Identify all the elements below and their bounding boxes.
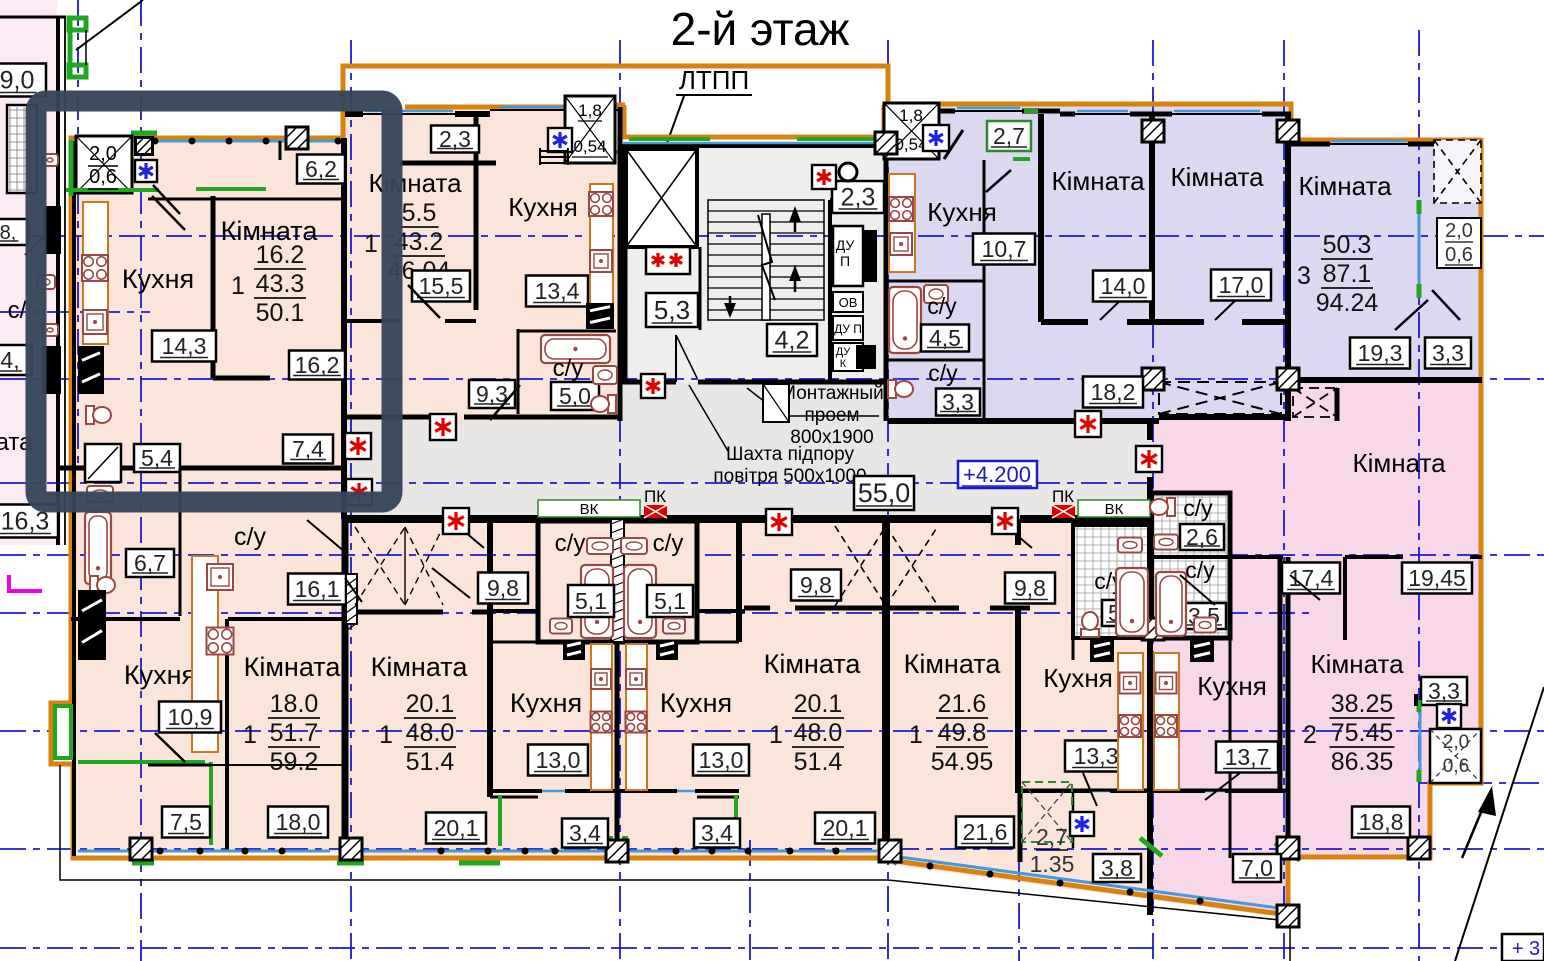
svg-text:50.3: 50.3 bbox=[1323, 231, 1372, 259]
svg-text:Кімната: Кімната bbox=[1352, 448, 1446, 478]
svg-text:К: К bbox=[840, 358, 847, 370]
svg-text:15,5: 15,5 bbox=[419, 273, 464, 299]
svg-text:13,4: 13,4 bbox=[535, 278, 580, 304]
svg-text:Кухня: Кухня bbox=[1043, 663, 1113, 693]
svg-text:Кімната: Кімната bbox=[244, 652, 342, 682]
svg-text:51.4: 51.4 bbox=[794, 748, 843, 776]
svg-text:с/у: с/у bbox=[234, 523, 266, 551]
svg-text:1: 1 bbox=[769, 721, 783, 749]
svg-text:3: 3 bbox=[1297, 262, 1311, 290]
svg-text:10,7: 10,7 bbox=[982, 236, 1027, 262]
svg-text:13,3: 13,3 bbox=[1074, 743, 1119, 769]
svg-text:3,4: 3,4 bbox=[701, 820, 733, 846]
svg-text:13,0: 13,0 bbox=[536, 747, 581, 773]
svg-text:16,1: 16,1 bbox=[295, 576, 340, 602]
svg-text:1.35: 1.35 bbox=[1030, 851, 1075, 877]
svg-text:П: П bbox=[840, 253, 850, 269]
svg-text:38.25: 38.25 bbox=[1331, 690, 1394, 718]
svg-text:18,8: 18,8 bbox=[1359, 809, 1404, 835]
svg-text:9,8: 9,8 bbox=[1014, 575, 1046, 601]
svg-text:+ 3: + 3 bbox=[1512, 938, 1540, 960]
svg-text:19,3: 19,3 bbox=[1358, 340, 1403, 366]
svg-text:0,6: 0,6 bbox=[89, 166, 117, 188]
svg-text:86.35: 86.35 bbox=[1331, 748, 1394, 776]
svg-text:87.1: 87.1 bbox=[1323, 260, 1372, 288]
svg-text:7,5: 7,5 bbox=[170, 809, 202, 835]
svg-text:ВК: ВК bbox=[1105, 501, 1124, 518]
svg-text:18,0: 18,0 bbox=[276, 809, 321, 835]
svg-text:5,3: 5,3 bbox=[654, 295, 690, 325]
svg-text:14,0: 14,0 bbox=[1101, 273, 1146, 299]
svg-text:5,0: 5,0 bbox=[559, 383, 591, 409]
svg-text:Кімната: Кімната bbox=[1051, 166, 1145, 196]
svg-text:1,8: 1,8 bbox=[899, 106, 923, 125]
svg-text:с/у: с/у bbox=[1185, 557, 1215, 583]
svg-text:Кухня: Кухня bbox=[927, 197, 997, 227]
svg-text:5,1: 5,1 bbox=[575, 588, 607, 614]
svg-text:14,3: 14,3 bbox=[162, 333, 207, 359]
svg-text:59.2: 59.2 bbox=[270, 748, 319, 776]
svg-text:ОВ: ОВ bbox=[839, 295, 858, 310]
svg-text:2,7: 2,7 bbox=[993, 123, 1025, 149]
svg-text:5,1: 5,1 bbox=[654, 588, 686, 614]
svg-text:20,1: 20,1 bbox=[823, 815, 868, 841]
svg-text:с/у: с/у bbox=[927, 293, 957, 319]
svg-text:10,9: 10,9 bbox=[168, 704, 213, 730]
svg-text:48.0: 48.0 bbox=[406, 719, 455, 747]
svg-text:2: 2 bbox=[1303, 721, 1317, 749]
svg-text:16,2: 16,2 bbox=[295, 352, 340, 378]
svg-text:9,8: 9,8 bbox=[487, 575, 519, 601]
svg-text:3,3: 3,3 bbox=[1432, 340, 1464, 366]
svg-text:13,0: 13,0 bbox=[699, 747, 744, 773]
svg-text:18,2: 18,2 bbox=[1091, 379, 1136, 405]
svg-text:1: 1 bbox=[379, 721, 393, 749]
svg-text:Кухня: Кухня bbox=[122, 264, 194, 294]
svg-text:7,4: 7,4 bbox=[292, 436, 324, 462]
svg-text:6,7: 6,7 bbox=[134, 550, 166, 576]
svg-text:2,0: 2,0 bbox=[1445, 220, 1473, 242]
svg-text:Шахта підпору: Шахта підпору bbox=[726, 444, 854, 465]
svg-text:Кімната: Кімната bbox=[1170, 162, 1264, 192]
svg-text:48.0: 48.0 bbox=[794, 719, 843, 747]
svg-text:20.1: 20.1 bbox=[406, 690, 455, 718]
svg-text:54.95: 54.95 bbox=[931, 748, 994, 776]
svg-text:4,: 4, bbox=[0, 347, 19, 373]
svg-text:2,7: 2,7 bbox=[1036, 824, 1068, 850]
svg-text:17,0: 17,0 bbox=[1219, 272, 1264, 298]
svg-text:2-й этаж: 2-й этаж bbox=[671, 3, 850, 55]
svg-text:51.7: 51.7 bbox=[270, 719, 319, 747]
svg-text:16.2: 16.2 bbox=[256, 241, 305, 269]
svg-text:Кухня: Кухня bbox=[510, 688, 582, 718]
svg-text:Кімната: Кімната bbox=[904, 649, 1002, 679]
svg-text:Кімната: Кімната bbox=[1298, 171, 1392, 201]
svg-text:1: 1 bbox=[364, 230, 378, 258]
svg-text:ПК: ПК bbox=[644, 487, 666, 506]
svg-text:4,2: 4,2 bbox=[775, 327, 810, 355]
svg-text:2,3: 2,3 bbox=[841, 184, 876, 212]
svg-text:2,0: 2,0 bbox=[89, 143, 117, 165]
svg-text:Кухня: Кухня bbox=[124, 660, 196, 690]
svg-text:1: 1 bbox=[909, 721, 923, 749]
svg-text:ДУ: ДУ bbox=[836, 346, 852, 358]
svg-text:с/: с/ bbox=[8, 297, 27, 324]
svg-text:1: 1 bbox=[231, 272, 245, 300]
svg-text:13,7: 13,7 bbox=[1225, 744, 1270, 770]
svg-text:ДУ: ДУ bbox=[836, 237, 855, 253]
svg-text:ВК: ВК bbox=[580, 501, 599, 518]
svg-text:Кімната: Кімната bbox=[371, 652, 469, 682]
svg-text:9,8: 9,8 bbox=[800, 572, 832, 598]
svg-text:51.4: 51.4 bbox=[406, 748, 455, 776]
svg-text:2,0: 2,0 bbox=[1443, 732, 1469, 753]
svg-text:с/у: с/у bbox=[653, 530, 684, 557]
svg-text:Кухня: Кухня bbox=[1197, 671, 1267, 701]
svg-text:55,0: 55,0 bbox=[858, 478, 911, 508]
svg-text:3,8: 3,8 bbox=[1101, 855, 1133, 881]
svg-text:ЛТПП: ЛТПП bbox=[679, 65, 749, 95]
svg-text:Кухня: Кухня bbox=[508, 192, 578, 222]
svg-text:0,6: 0,6 bbox=[1445, 244, 1473, 266]
svg-text:21,6: 21,6 bbox=[963, 819, 1008, 845]
svg-text:50.1: 50.1 bbox=[256, 299, 305, 327]
svg-text:ДУ П: ДУ П bbox=[834, 322, 862, 336]
svg-text:Кімната: Кімната bbox=[1310, 649, 1404, 679]
svg-text:+4.200: +4.200 bbox=[963, 462, 1031, 487]
svg-text:7,0: 7,0 bbox=[1241, 855, 1273, 881]
svg-text:с/у: с/у bbox=[928, 360, 958, 386]
svg-text:20,1: 20,1 bbox=[434, 815, 479, 841]
svg-text:Монтажный: Монтажный bbox=[780, 383, 884, 404]
svg-text:94.24: 94.24 bbox=[1316, 289, 1379, 317]
svg-text:6,2: 6,2 bbox=[305, 156, 337, 182]
svg-text:75.45: 75.45 bbox=[1331, 719, 1394, 747]
svg-text:Кухня: Кухня bbox=[660, 688, 732, 718]
svg-text:ПК: ПК bbox=[1052, 487, 1074, 506]
svg-text:20.1: 20.1 bbox=[794, 690, 843, 718]
svg-text:49.8: 49.8 bbox=[938, 719, 987, 747]
svg-text:с/у: с/у bbox=[1183, 495, 1213, 521]
svg-text:21.6: 21.6 bbox=[938, 690, 987, 718]
svg-text:Кімната: Кімната bbox=[764, 649, 862, 679]
svg-text:19,45: 19,45 bbox=[1408, 565, 1466, 591]
svg-text:с/у: с/у bbox=[553, 355, 584, 382]
svg-text:0,54: 0,54 bbox=[573, 137, 606, 156]
svg-text:повітря 500х1000: повітря 500х1000 bbox=[713, 466, 866, 487]
svg-text:5.5: 5.5 bbox=[402, 199, 437, 227]
svg-text:18.0: 18.0 bbox=[270, 690, 319, 718]
svg-text:1: 1 bbox=[243, 721, 257, 749]
svg-text:1,8: 1,8 bbox=[578, 101, 602, 120]
svg-text:9,0: 9,0 bbox=[0, 67, 34, 95]
svg-text:17,4: 17,4 bbox=[1289, 565, 1334, 591]
svg-text:с/у: с/у bbox=[555, 530, 586, 557]
svg-text:0,6: 0,6 bbox=[1443, 756, 1469, 777]
svg-text:43.3: 43.3 bbox=[256, 270, 305, 298]
svg-text:3,4: 3,4 bbox=[569, 820, 601, 846]
svg-text:3,3: 3,3 bbox=[1428, 678, 1460, 704]
svg-text:5,4: 5,4 bbox=[141, 445, 173, 471]
